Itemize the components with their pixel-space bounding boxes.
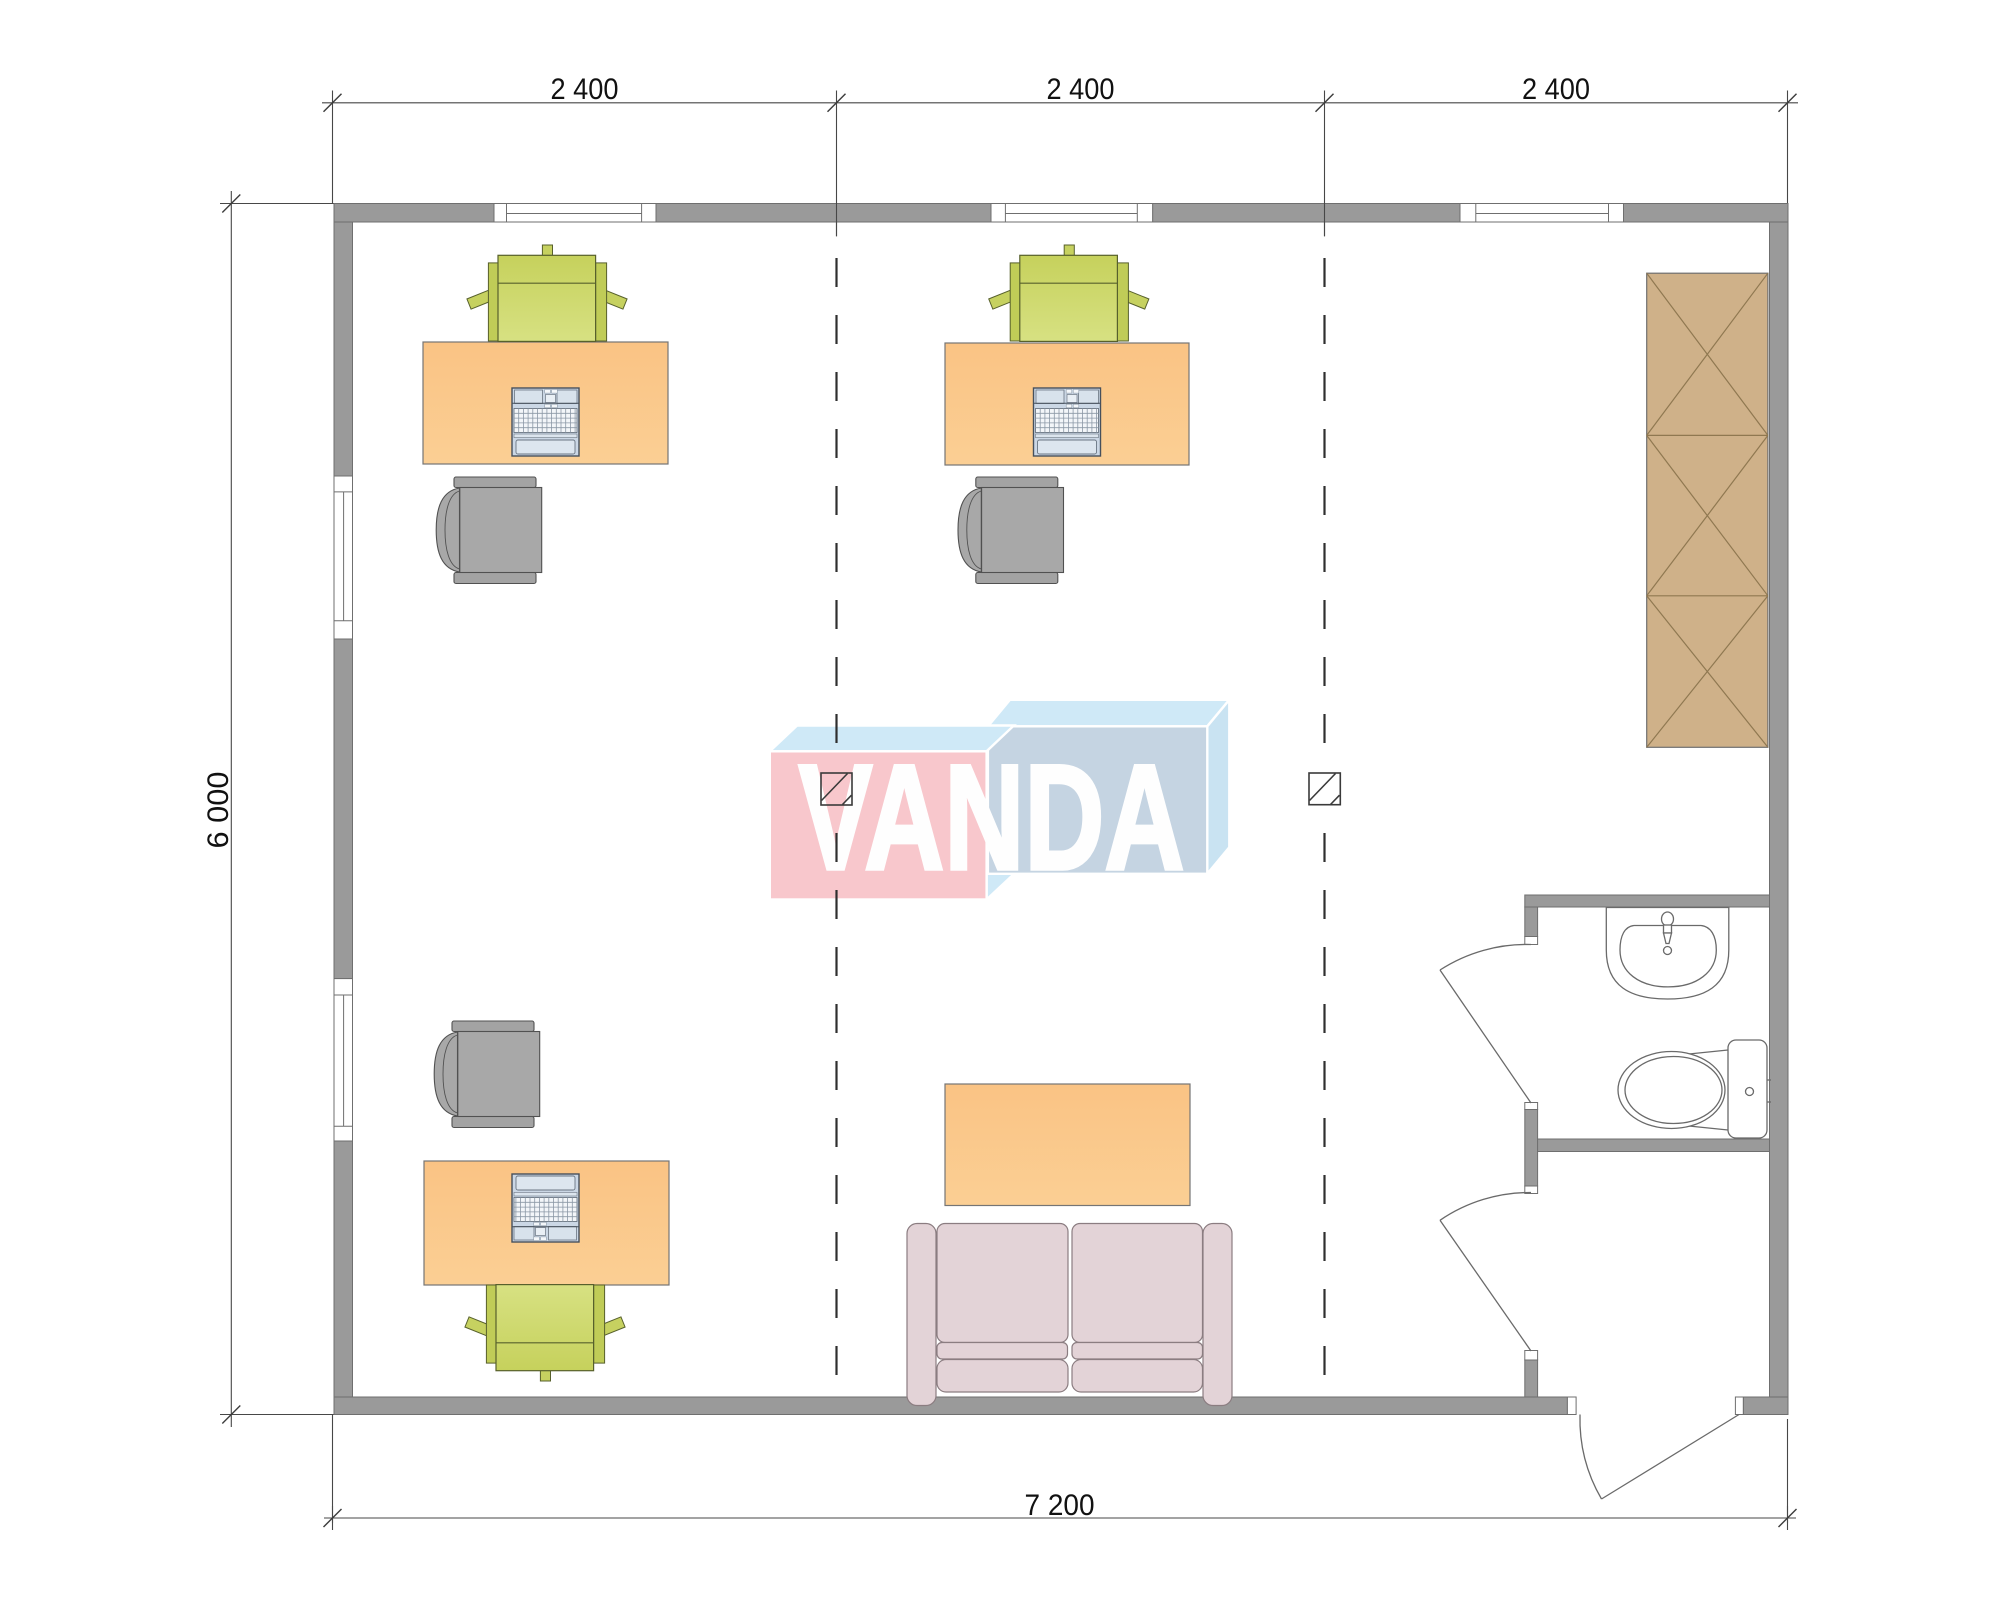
svg-text:7 200: 7 200 <box>1025 1489 1095 1522</box>
svg-text:2 400: 2 400 <box>1522 73 1590 106</box>
svg-text:6 000: 6 000 <box>202 772 235 849</box>
svg-text:2 400: 2 400 <box>551 73 619 106</box>
svg-text:VANDA: VANDA <box>799 733 1185 901</box>
svg-text:2 400: 2 400 <box>1047 73 1115 106</box>
